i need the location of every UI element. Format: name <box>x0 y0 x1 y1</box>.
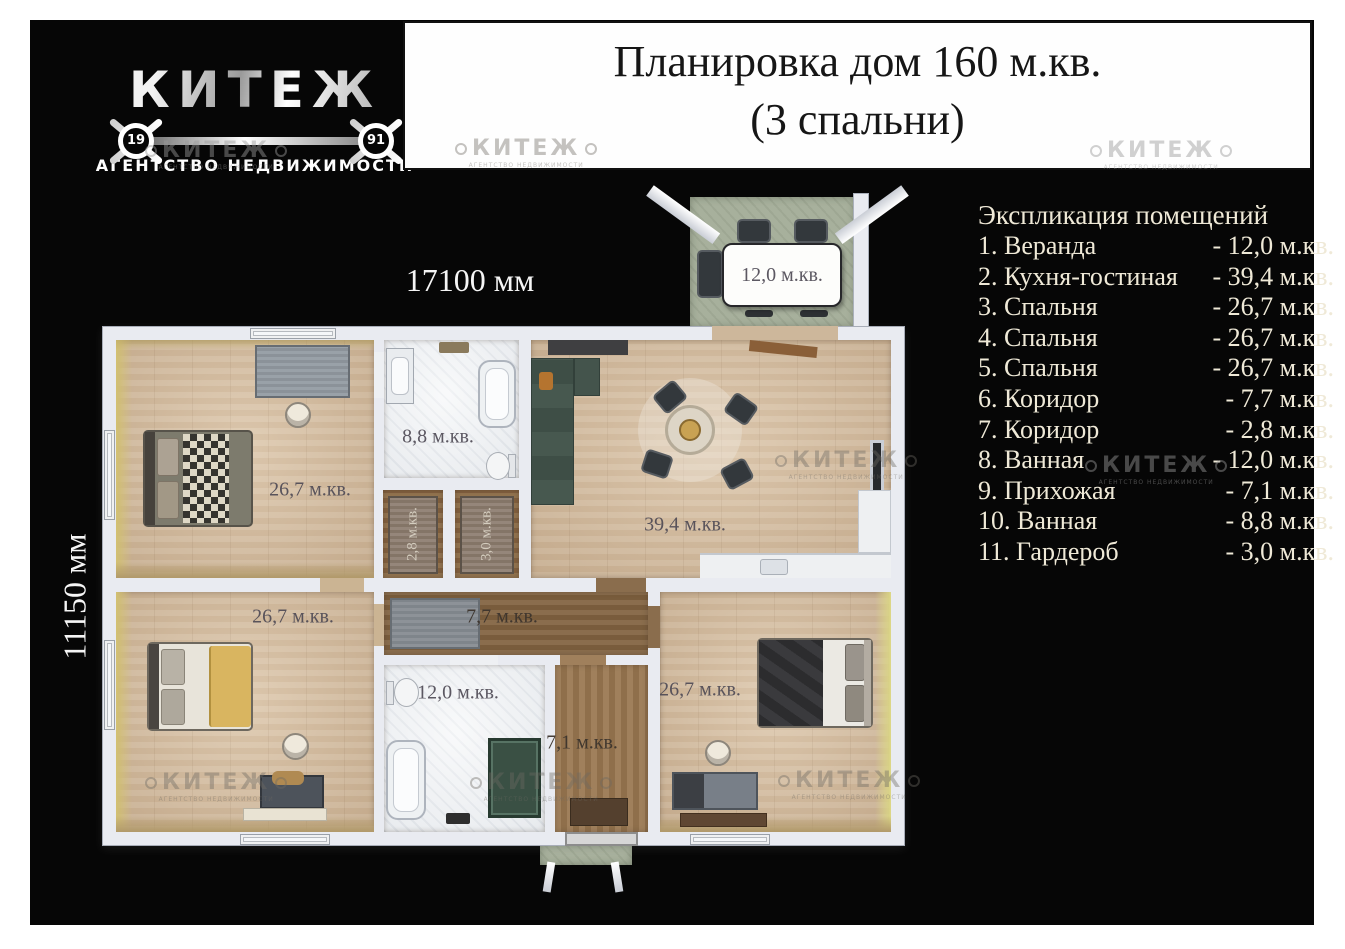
door-bathroom-bottom <box>450 655 498 665</box>
door-mat <box>243 808 327 821</box>
window <box>104 430 115 520</box>
kitchen-counter <box>700 553 891 578</box>
window <box>240 834 330 845</box>
bathtub <box>386 740 426 820</box>
shower <box>488 738 541 818</box>
legend-item: 10. Ванная- 8,8 м.кв. <box>978 506 1334 537</box>
legend-item: 11. Гардероб- 3,0 м.кв. <box>978 537 1334 568</box>
logo-year-left: 19 <box>118 123 154 159</box>
toilet <box>386 681 394 705</box>
veranda-table: 12,0 м.кв. <box>722 243 842 307</box>
floor-plan: 26,7 м.кв. 8,8 м.кв. 2,8 м.кв. 3,0 м.кв.… <box>102 326 905 846</box>
page-title-line1: Планировка дом 160 м.кв. <box>405 33 1310 91</box>
bed <box>757 638 873 728</box>
veranda-chair <box>794 219 828 243</box>
area-label-bedroom-bottom-right: 26,7 м.кв. <box>659 679 741 702</box>
area-label-corridor: 7,7 м.кв. <box>466 606 538 629</box>
door-bedroom-top-left <box>320 578 364 592</box>
dresser <box>672 772 758 810</box>
toilet <box>394 678 419 707</box>
door-mat <box>680 813 767 827</box>
dimension-height-label: 11150 мм <box>57 487 94 707</box>
door-to-veranda <box>712 326 838 340</box>
veranda-chair <box>697 250 723 298</box>
area-label-bedroom-top-left: 26,7 м.кв. <box>269 479 351 502</box>
dimension-width-label: 17100 мм <box>330 262 610 299</box>
area-label-bathroom-top: 8,8 м.кв. <box>402 426 474 449</box>
legend-item: 7. Коридор- 2,8 м.кв. <box>978 415 1334 446</box>
legend-item: 3. Спальня- 26,7 м.кв. <box>978 292 1334 323</box>
title-box: Планировка дом 160 м.кв. (3 спальни) <box>403 21 1312 170</box>
poster: КИТЕЖ 19 91 АГЕНТСТВО НЕДВИЖИМОСТИ Экспл… <box>0 0 1345 949</box>
room-bedroom-bottom-left <box>116 592 374 832</box>
window <box>250 328 336 339</box>
area-label-kitchen-living: 39,4 м.кв. <box>644 514 726 537</box>
area-label-bedroom-bottom-left: 26,7 м.кв. <box>252 606 334 629</box>
legend-item: 4. Спальня- 26,7 м.кв. <box>978 323 1334 354</box>
door-bedroom-bottom-right <box>648 606 660 648</box>
veranda-area-label: 12,0 м.кв. <box>741 264 823 287</box>
room-bedroom-bottom-right <box>660 592 891 832</box>
area-label-hallway: 7,1 м.кв. <box>546 732 618 755</box>
window <box>104 640 115 730</box>
front-door <box>565 832 638 846</box>
sink <box>386 348 414 404</box>
chair <box>282 733 309 760</box>
room-bedroom-top-left <box>116 340 374 578</box>
stool <box>446 813 470 824</box>
legend-item: 9. Прихожая- 7,1 м.кв. <box>978 476 1334 507</box>
bathtub <box>478 360 516 428</box>
legend-item: 5. Спальня- 26,7 м.кв. <box>978 353 1334 384</box>
tv-console <box>548 340 628 355</box>
page-title-line2: (3 спальни) <box>405 91 1310 149</box>
entry-mat <box>570 798 628 826</box>
veranda-chair <box>800 310 828 317</box>
chair <box>285 402 311 428</box>
sofa-pillow <box>539 372 553 390</box>
room-kitchen-living <box>531 340 891 578</box>
area-label-bathroom-bottom: 12,0 м.кв. <box>417 682 499 705</box>
sofa-arm <box>574 358 600 396</box>
door-bathroom-top <box>374 352 384 398</box>
legend-item: 6. Коридор- 7,7 м.кв. <box>978 384 1334 415</box>
room-legend: Экспликация помещений 1. Веранда- 12,0 м… <box>978 200 1334 568</box>
window <box>690 834 770 845</box>
open-door <box>749 340 818 358</box>
area-label-corridor-small: 2,8 м.кв. <box>405 507 422 561</box>
toilet <box>486 452 510 480</box>
logo-tagline: АГЕНТСТВО НЕДВИЖИМОСТИ <box>90 156 420 175</box>
logo-year-right: 91 <box>358 123 394 159</box>
veranda-chair <box>737 219 771 243</box>
veranda-chair <box>745 310 773 317</box>
dining-table <box>665 405 715 455</box>
door-hallway <box>560 655 606 665</box>
logo-divider-bar <box>148 137 363 145</box>
chair <box>705 740 731 766</box>
legend-item: 2. Кухня-гостиная- 39,4 м.кв. <box>978 262 1334 293</box>
kitchen-sink <box>760 559 788 575</box>
cabinet <box>255 345 350 398</box>
door-bedroom-bottom-left <box>374 604 384 646</box>
bed <box>143 430 253 527</box>
shelf <box>439 342 469 353</box>
legend-item: 1. Веранда- 12,0 м.кв. <box>978 231 1334 262</box>
bed <box>147 642 253 731</box>
kitchen-counter <box>858 490 891 553</box>
room-bathroom-top <box>384 340 519 478</box>
agency-logo: КИТЕЖ 19 91 АГЕНТСТВО НЕДВИЖИМОСТИ <box>90 58 420 176</box>
door-kitchen-corridor <box>596 578 646 592</box>
dresser <box>260 775 324 809</box>
legend-heading: Экспликация помещений <box>978 200 1334 231</box>
area-label-wardrobe: 3,0 м.кв. <box>479 507 496 561</box>
legend-item: 8. Ванная- 12,0 м.кв. <box>978 445 1334 476</box>
logo-brand-text: КИТЕЖ <box>90 62 420 118</box>
